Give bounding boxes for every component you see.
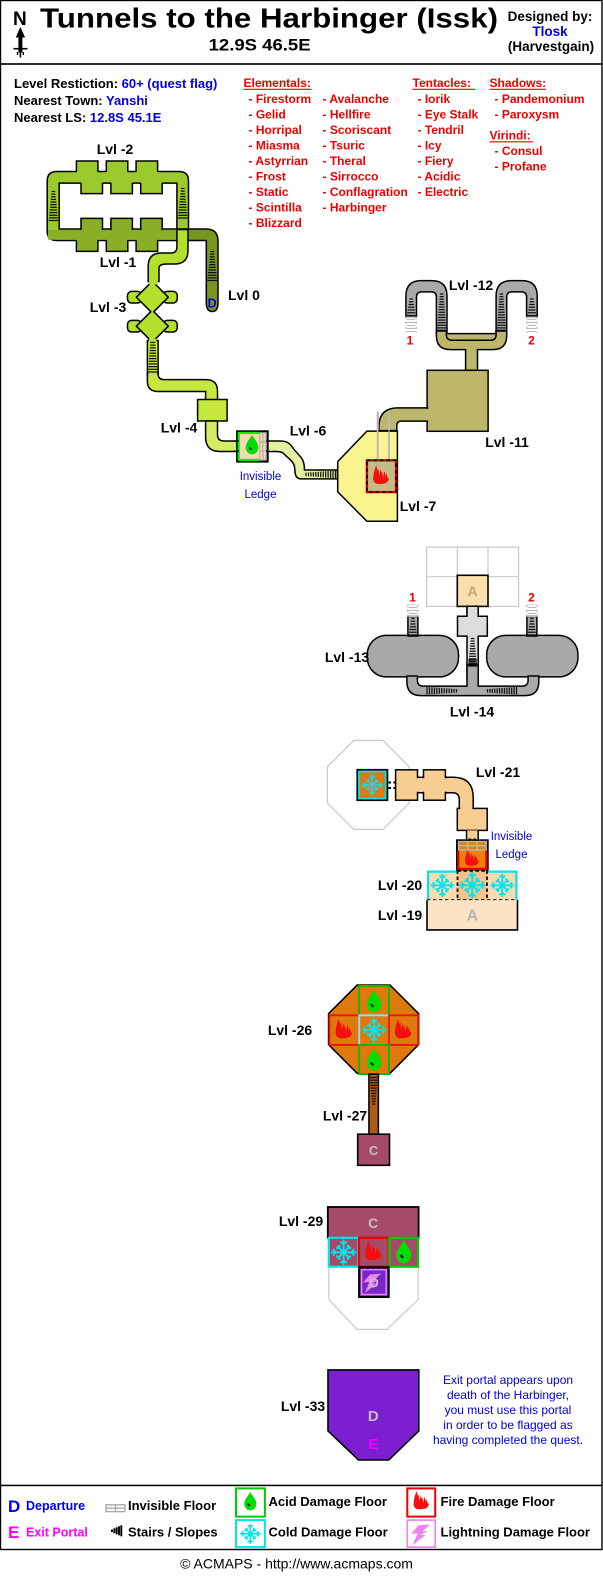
- svg-text:Lvl -6: Lvl -6: [290, 423, 327, 439]
- svg-text:Invisible: Invisible: [240, 471, 282, 483]
- svg-text:2: 2: [528, 591, 535, 605]
- svg-text:- Astyrrian: - Astyrrian: [249, 154, 309, 168]
- svg-text:Ledge: Ledge: [245, 489, 277, 501]
- svg-text:Shadows:: Shadows:: [490, 76, 547, 90]
- svg-text:Exit portal appears upon: Exit portal appears upon: [443, 1373, 573, 1387]
- svg-text:- Consul: - Consul: [495, 144, 543, 158]
- svg-text:Lvl -33: Lvl -33: [281, 1398, 326, 1414]
- svg-text:- Electric: - Electric: [418, 185, 469, 199]
- svg-text:Tentacles:: Tentacles:: [413, 76, 471, 90]
- svg-text:- Fiery: - Fiery: [418, 154, 454, 168]
- svg-text:1: 1: [409, 591, 416, 605]
- svg-text:Tlosk: Tlosk: [532, 24, 568, 39]
- svg-text:- Tendril: - Tendril: [418, 123, 464, 137]
- svg-text:E: E: [8, 1523, 19, 1542]
- svg-text:you must use this portal: you must use this portal: [445, 1403, 572, 1417]
- svg-text:E: E: [368, 1436, 378, 1453]
- svg-text:Nearest LS: 12.8S 45.1E: Nearest LS: 12.8S 45.1E: [14, 110, 162, 125]
- svg-text:2: 2: [528, 334, 535, 348]
- svg-text:Departure: Departure: [26, 1499, 85, 1513]
- svg-text:Nearest Town: Yanshi: Nearest Town: Yanshi: [14, 93, 148, 108]
- svg-text:- Theral: - Theral: [323, 154, 366, 168]
- svg-text:Designed by:: Designed by:: [508, 9, 593, 24]
- svg-text:D: D: [369, 1276, 379, 1291]
- svg-text:(Harvestgain): (Harvestgain): [508, 39, 594, 54]
- svg-text:Invisible Floor: Invisible Floor: [128, 1498, 216, 1513]
- svg-text:- Frost: - Frost: [249, 170, 286, 184]
- svg-text:Level Restiction: 60+ (quest f: Level Restiction: 60+ (quest flag): [14, 76, 217, 91]
- svg-text:Ledge: Ledge: [496, 849, 528, 861]
- svg-text:Lvl -26: Lvl -26: [268, 1022, 313, 1038]
- svg-text:- Avalanche: - Avalanche: [323, 92, 390, 106]
- svg-text:Lvl -7: Lvl -7: [400, 498, 437, 514]
- svg-text:- Paroxysm: - Paroxysm: [495, 108, 560, 122]
- svg-text:- Profane: - Profane: [495, 160, 547, 174]
- svg-text:- Static: - Static: [249, 185, 289, 199]
- svg-text:Lvl -11: Lvl -11: [485, 434, 529, 450]
- svg-text:- Scintilla: - Scintilla: [249, 201, 303, 215]
- svg-text:- Icy: - Icy: [418, 139, 442, 153]
- svg-text:D: D: [208, 297, 217, 311]
- svg-text:- Sirrocco: - Sirrocco: [323, 170, 379, 184]
- svg-text:Virindi:: Virindi:: [490, 129, 531, 143]
- svg-text:A: A: [467, 584, 478, 601]
- svg-text:- Miasma: - Miasma: [249, 139, 301, 153]
- svg-text:- Harbinger: - Harbinger: [323, 201, 387, 215]
- svg-text:Lightning Damage Floor: Lightning Damage Floor: [441, 1525, 591, 1540]
- svg-text:- Hellfire: - Hellfire: [323, 108, 371, 122]
- svg-text:Tunnels to the Harbinger (Issk: Tunnels to the Harbinger (Issk): [40, 3, 498, 34]
- svg-text:- Tsuric: - Tsuric: [323, 139, 366, 153]
- svg-text:Elementals:: Elementals:: [244, 76, 311, 90]
- svg-text:12.9S 46.5E: 12.9S 46.5E: [209, 36, 311, 55]
- svg-text:Lvl -27: Lvl -27: [323, 1108, 368, 1124]
- svg-text:- Eye Stalk: - Eye Stalk: [418, 108, 479, 122]
- svg-text:- Blizzard: - Blizzard: [249, 216, 302, 230]
- svg-text:- Firestorm: - Firestorm: [249, 92, 312, 106]
- svg-text:N: N: [13, 9, 27, 30]
- svg-text:Lvl -19: Lvl -19: [378, 907, 423, 923]
- svg-text:C: C: [369, 1143, 379, 1158]
- svg-text:Acid Damage Floor: Acid Damage Floor: [269, 1494, 387, 1509]
- svg-text:- Gelid: - Gelid: [249, 108, 286, 122]
- svg-text:- Horripal: - Horripal: [249, 123, 302, 137]
- svg-text:Lvl -1: Lvl -1: [100, 254, 137, 270]
- svg-text:- Conflagration: - Conflagration: [323, 185, 408, 199]
- svg-text:D: D: [8, 1497, 20, 1516]
- svg-text:- Iorik: - Iorik: [418, 92, 451, 106]
- svg-text:Lvl -4: Lvl -4: [161, 420, 198, 436]
- svg-text:Exit Portal: Exit Portal: [26, 1526, 88, 1540]
- svg-text:Lvl -29: Lvl -29: [279, 1213, 324, 1229]
- svg-text:- Scoriscant: - Scoriscant: [323, 123, 392, 137]
- svg-text:Lvl -14: Lvl -14: [450, 704, 495, 720]
- svg-text:Stairs / Slopes: Stairs / Slopes: [128, 1525, 218, 1540]
- svg-text:Fire Damage Floor: Fire Damage Floor: [441, 1494, 555, 1509]
- svg-text:D: D: [368, 1408, 379, 1425]
- svg-text:Lvl -2: Lvl -2: [97, 141, 134, 157]
- svg-text:1: 1: [407, 334, 414, 348]
- svg-text:Lvl -13: Lvl -13: [325, 649, 370, 665]
- svg-text:Lvl -3: Lvl -3: [90, 299, 127, 315]
- svg-text:- Acidic: - Acidic: [418, 170, 461, 184]
- svg-text:C: C: [368, 1215, 378, 1231]
- svg-text:Lvl -21: Lvl -21: [476, 764, 521, 780]
- svg-text:Lvl -20: Lvl -20: [378, 877, 423, 893]
- svg-text:B: B: [367, 778, 377, 794]
- svg-text:© ACMAPS - http://www.acmaps.c: © ACMAPS - http://www.acmaps.com: [180, 1556, 413, 1572]
- svg-text:Lvl -12: Lvl -12: [449, 277, 494, 293]
- svg-text:- Pandemonium: - Pandemonium: [495, 92, 585, 106]
- svg-text:A: A: [467, 908, 478, 925]
- svg-text:Cold Damage Floor: Cold Damage Floor: [269, 1525, 388, 1540]
- svg-text:Lvl 0: Lvl 0: [228, 287, 260, 303]
- svg-text:Invisible: Invisible: [491, 831, 533, 843]
- svg-text:in order to be flagged as: in order to be flagged as: [443, 1418, 572, 1432]
- svg-text:death of the Harbinger,: death of the Harbinger,: [447, 1388, 569, 1402]
- svg-text:having completed the quest.: having completed the quest.: [433, 1433, 583, 1447]
